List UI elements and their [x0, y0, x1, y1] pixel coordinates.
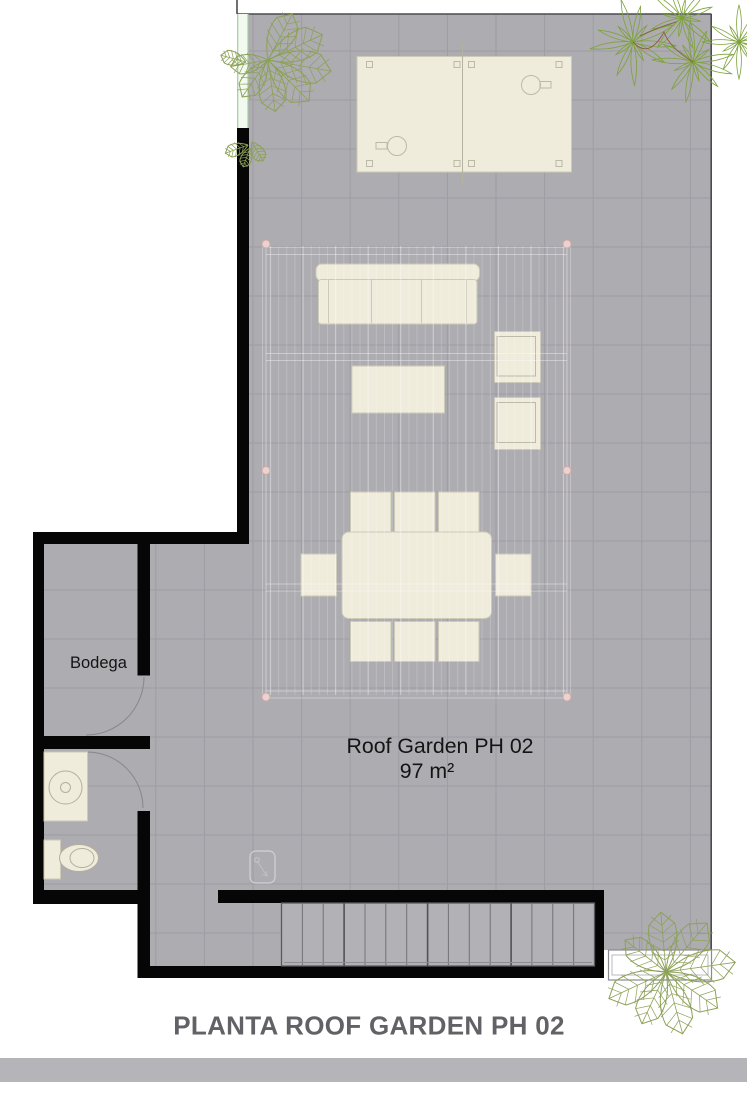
svg-text:97 m²: 97 m²: [400, 759, 454, 783]
svg-text:PLANTA ROOF GARDEN PH 02: PLANTA ROOF GARDEN PH 02: [173, 1011, 564, 1041]
svg-text:Roof Garden PH 02: Roof Garden PH 02: [346, 734, 533, 758]
svg-text:Bodega: Bodega: [70, 654, 128, 672]
